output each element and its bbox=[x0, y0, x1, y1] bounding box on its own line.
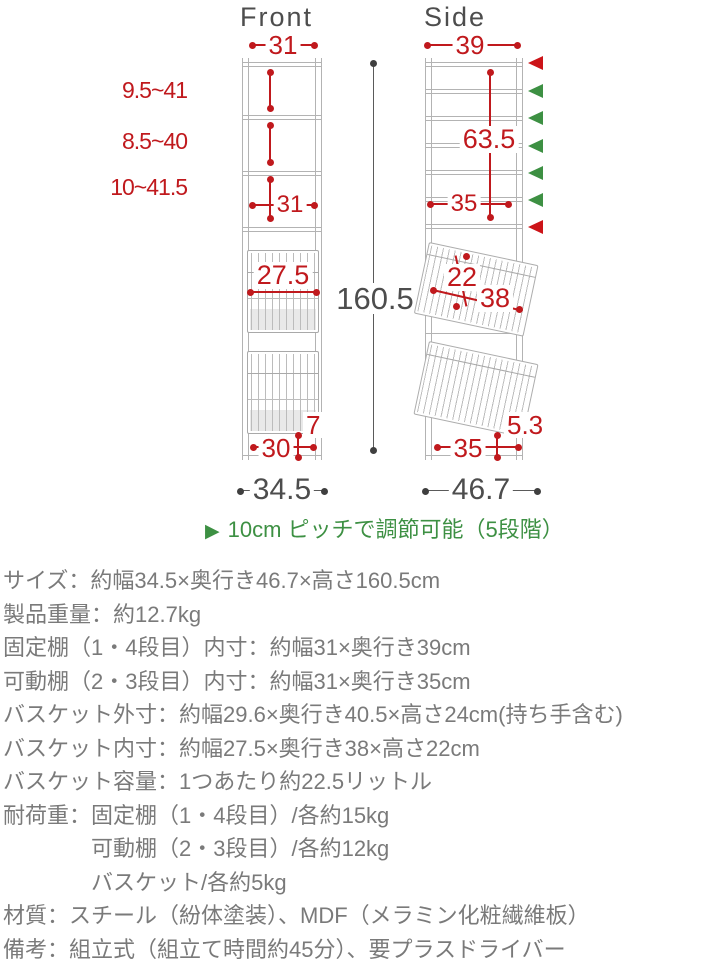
dim-line bbox=[373, 63, 374, 450]
spec-line-weight: 製品重量：約12.7kg bbox=[3, 598, 717, 632]
spec-line-load-basket: バスケット/各約5kg bbox=[3, 866, 717, 900]
side-basket-depth-label: 38 bbox=[477, 285, 513, 312]
spec-line-size: サイズ：約幅34.5×奥行き46.7×高さ160.5cm bbox=[3, 564, 717, 598]
dim-dot bbox=[515, 444, 522, 451]
spec-line-movable-shelf: 可動棚（2・3段目）内寸：約幅31×奥行き35cm bbox=[3, 665, 717, 699]
dim-dot bbox=[249, 42, 256, 49]
spec-line-basket-capacity: バスケット容量：1つあたり約22.5リットル bbox=[3, 765, 717, 799]
dim-dot bbox=[310, 444, 317, 451]
dim-dot bbox=[249, 202, 256, 209]
adjustable-shelf-marker-icon bbox=[528, 193, 543, 207]
total-height-label: 160.5 bbox=[333, 283, 417, 314]
dim-dot bbox=[311, 202, 318, 209]
dim-dot bbox=[237, 488, 244, 495]
dim-dot bbox=[267, 122, 274, 129]
side-shelf-line-3 bbox=[425, 116, 523, 121]
side-view-title: Side bbox=[424, 2, 486, 33]
dim-dot bbox=[487, 69, 494, 76]
dim-dot bbox=[534, 488, 541, 495]
front-mid-width-label: 31 bbox=[274, 193, 307, 217]
dim-dot bbox=[267, 176, 274, 183]
side-shelf-line-5 bbox=[425, 170, 523, 175]
dim-dot bbox=[370, 447, 377, 454]
dim-dot bbox=[453, 303, 460, 310]
dim-dot bbox=[267, 105, 274, 112]
side-bottom-depth-label: 35 bbox=[451, 435, 486, 461]
adjustable-shelf-marker-icon bbox=[528, 111, 543, 125]
dim-line bbox=[269, 125, 271, 162]
side-foot-clearance-label: 5.3 bbox=[504, 412, 546, 438]
dim-dot bbox=[430, 287, 437, 294]
dim-line bbox=[269, 179, 271, 218]
dim-dot bbox=[516, 306, 523, 313]
dim-dot bbox=[505, 201, 512, 208]
front-bottom-width-label: 30 bbox=[259, 435, 294, 461]
fixed-shelf-marker-icon bbox=[528, 56, 543, 70]
dim-dot bbox=[295, 432, 302, 439]
note-bullet-icon: ▶ bbox=[205, 521, 220, 542]
dim-line bbox=[250, 291, 316, 293]
dim-dot bbox=[311, 42, 318, 49]
front-view-title: Front bbox=[240, 2, 313, 33]
front-shelf-line-4 bbox=[242, 227, 322, 232]
dim-dot bbox=[267, 215, 274, 222]
product-dimension-sheet: Front Side 31 9.5~41 bbox=[0, 0, 718, 969]
spec-line-basket-inner: バスケット内寸：約幅27.5×奥行き38×高さ22cm bbox=[3, 732, 717, 766]
front-gap-range-3-label: 10~41.5 bbox=[107, 176, 190, 199]
front-shelf-line-2 bbox=[242, 115, 322, 120]
spec-list: サイズ：約幅34.5×奥行き46.7×高さ160.5cm 製品重量：約12.7k… bbox=[3, 564, 717, 966]
dim-line bbox=[269, 72, 271, 108]
dim-dot bbox=[427, 201, 434, 208]
front-foot-height-label: 7 bbox=[303, 412, 323, 438]
spec-line-basket-outer: バスケット外寸：約幅29.6×奥行き40.5×高さ24cm(持ち手含む) bbox=[3, 698, 717, 732]
side-shelf-line-7 bbox=[425, 224, 523, 229]
spec-line-fixed-shelf: 固定棚（1・4段目）内寸：約幅31×奥行き39cm bbox=[3, 631, 717, 665]
fixed-shelf-marker-icon bbox=[528, 220, 543, 234]
side-basket-height-label: 22 bbox=[444, 264, 480, 291]
front-shelf-line-3 bbox=[242, 171, 322, 176]
adjustable-shelf-marker-icon bbox=[528, 166, 543, 180]
front-gap-range-1-label: 9.5~41 bbox=[119, 79, 190, 102]
front-shelf-line-1 bbox=[242, 62, 322, 67]
front-top-width-label: 31 bbox=[266, 32, 301, 58]
spec-line-load-fixed: 耐荷重：固定棚（1・4段目）/各約15kg bbox=[3, 799, 717, 833]
side-top-depth-label: 39 bbox=[453, 32, 488, 58]
dim-dot bbox=[434, 444, 441, 451]
dim-dot bbox=[250, 444, 257, 451]
dim-dot bbox=[295, 454, 302, 461]
basket-rail bbox=[248, 373, 318, 374]
dim-dot bbox=[370, 60, 377, 67]
spec-line-load-movable: 可動棚（2・3段目）/各約12kg bbox=[3, 832, 717, 866]
basket-rail bbox=[248, 399, 318, 400]
dim-dot bbox=[494, 432, 501, 439]
dim-dot bbox=[463, 253, 470, 260]
side-inner-depth-label: 35 bbox=[448, 192, 481, 216]
dim-dot bbox=[313, 289, 320, 296]
note-text: 10cm ピッチで調節可能（5段階） bbox=[228, 517, 564, 542]
dim-dot bbox=[267, 69, 274, 76]
adjustable-shelf-marker-icon bbox=[528, 139, 543, 153]
dim-dot bbox=[514, 42, 521, 49]
spec-line-remarks: 備考：組立式（組立て時間約45分）、要プラスドライバー bbox=[3, 933, 717, 967]
dim-dot bbox=[321, 488, 328, 495]
dim-dot bbox=[494, 454, 501, 461]
side-shelf-line-2 bbox=[425, 89, 523, 94]
dim-dot bbox=[422, 488, 429, 495]
front-total-width-label: 34.5 bbox=[250, 475, 314, 505]
dim-dot bbox=[267, 159, 274, 166]
adjustable-shelf-marker-icon bbox=[528, 84, 543, 98]
front-basket-width-label: 27.5 bbox=[254, 262, 313, 289]
dim-dot bbox=[424, 42, 431, 49]
side-total-depth-label: 46.7 bbox=[449, 475, 513, 505]
basket-rail bbox=[248, 298, 318, 299]
dim-dot bbox=[487, 214, 494, 221]
front-gap-range-2-label: 8.5~40 bbox=[119, 130, 190, 153]
spec-line-material: 材質：スチール（紛体塗装）、MDF（メラミン化粧繊維板） bbox=[3, 899, 717, 933]
side-shelf-line-1 bbox=[425, 62, 523, 67]
dim-dot bbox=[247, 289, 254, 296]
side-shelf-span-label: 63.5 bbox=[460, 126, 519, 153]
adjustability-note: ▶10cm ピッチで調節可能（5段階） bbox=[205, 512, 564, 544]
